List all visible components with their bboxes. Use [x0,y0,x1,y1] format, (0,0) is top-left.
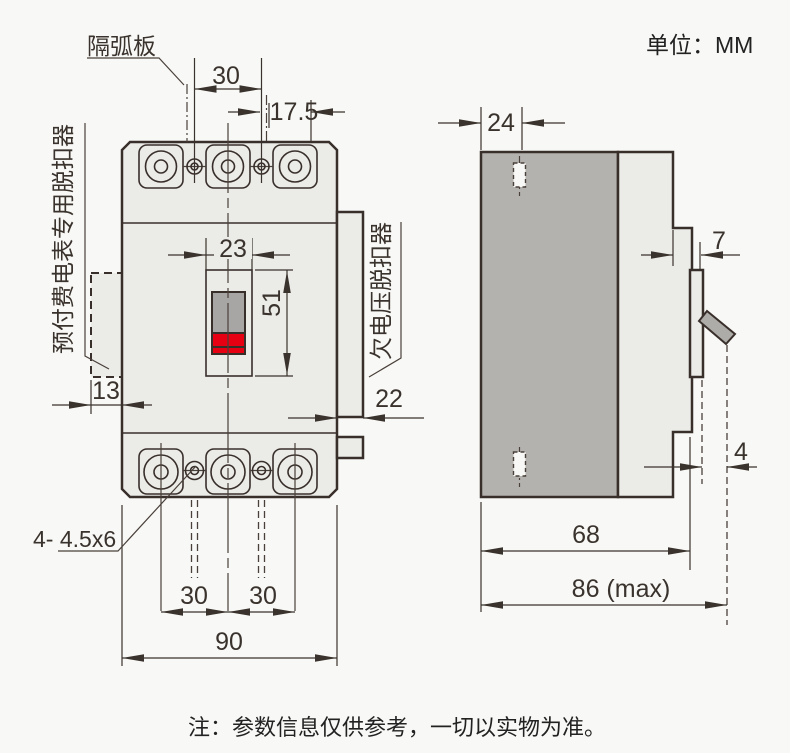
dim-value: 17.5 [270,98,319,126]
arc-plate-label: 隔弧板 [87,33,156,59]
technical-drawing-page: 30 17.5 23 51 [0,0,790,753]
dim-value: 51 [258,289,286,317]
slot-hole-top [514,163,526,187]
dim-value: 4 [734,438,748,466]
front-view: 30 17.5 23 51 [33,33,424,666]
mounting-holes-label: 4- 4.5x6 [33,526,116,552]
dim-value: 86 (max) [572,575,671,603]
undervoltage-module [337,212,363,417]
unit-label: 单位：MM [646,32,753,58]
mccb-dimension-drawing: 30 17.5 23 51 [0,0,790,753]
side-body-front [618,152,692,497]
note-text: 注：参数信息仅供参考，一切以实物为准。 [188,715,606,740]
dim-value: 24 [487,109,515,137]
dim-value: 13 [92,377,120,405]
dim-value: 22 [375,385,403,413]
side-body-back [481,152,618,497]
dim-value: 30 [180,582,208,610]
dim-offset-17-5: 17.5 [228,98,345,142]
undervoltage-release-label: 欠电压脱扣器 [368,222,394,360]
dim-value: 68 [572,521,600,549]
arc-plate-leader [87,58,184,85]
side-view: 24 7 4 68 [438,107,757,625]
dim-value: 7 [712,227,726,255]
slot-hole-bottom [514,452,526,476]
dim-max-depth: 86 (max) [481,575,727,609]
dim-mount-hole-depth: 24 [438,107,565,150]
dim-overall-width: 90 [122,505,337,666]
dim-value: 90 [215,628,243,656]
dim-value: 30 [249,582,277,610]
undervoltage-module-step [337,437,363,458]
side-handle-lever [699,311,735,344]
dim-value: 30 [212,62,240,90]
dim-value: 23 [219,235,247,263]
prepaid-release-label: 预付费电表专用脱扣器 [50,124,76,354]
